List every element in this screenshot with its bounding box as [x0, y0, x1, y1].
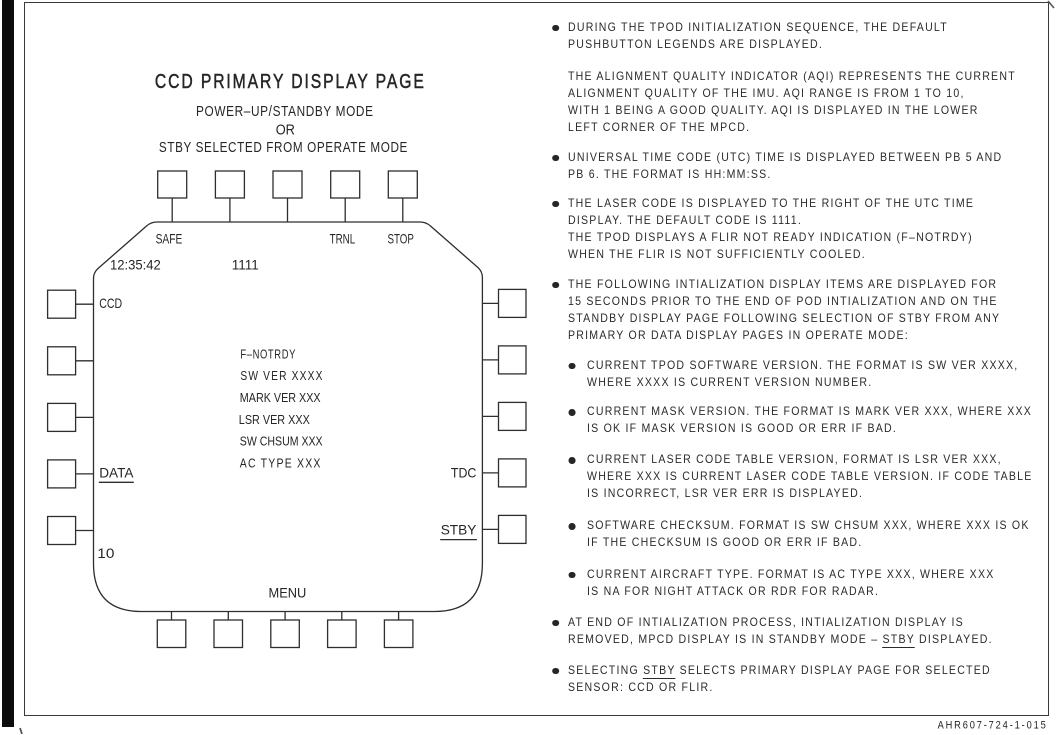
svg-text:10: 10: [97, 545, 114, 561]
svg-text:1111: 1111: [232, 257, 259, 273]
svg-text:DATA: DATA: [99, 465, 134, 481]
svg-text:SW CHSUM XXX: SW CHSUM XXX: [240, 435, 323, 449]
svg-text:STBY: STBY: [441, 521, 477, 537]
svg-text:F–NOTRDY: F–NOTRDY: [240, 347, 296, 361]
svg-text:TDC: TDC: [451, 464, 477, 480]
svg-text:SAFE: SAFE: [156, 231, 183, 247]
svg-text:SW VER XXXX: SW VER XXXX: [240, 369, 323, 383]
svg-text:STBY SELECTED FROM OPERATE MOD: STBY SELECTED FROM OPERATE MODE: [159, 139, 408, 156]
svg-text:STOP: STOP: [388, 231, 414, 247]
svg-text:TRNL: TRNL: [330, 231, 356, 247]
svg-text:CCD PRIMARY DISPLAY PAGE: CCD PRIMARY DISPLAY PAGE: [155, 71, 426, 93]
svg-text:MENU: MENU: [269, 584, 307, 600]
svg-text:POWER–UP/STANDBY MODE: POWER–UP/STANDBY MODE: [196, 103, 374, 120]
svg-text:MARK VER XXX: MARK VER XXX: [240, 391, 321, 405]
svg-text:AC TYPE XXX: AC TYPE XXX: [240, 456, 322, 470]
svg-text:OR: OR: [276, 122, 295, 139]
svg-text:CCD: CCD: [99, 295, 122, 311]
svg-text:AHR607-724-1-015: AHR607-724-1-015: [938, 719, 1048, 731]
svg-text:LSR VER XXX: LSR VER XXX: [239, 413, 311, 427]
svg-text:12:35:42: 12:35:42: [110, 257, 161, 273]
